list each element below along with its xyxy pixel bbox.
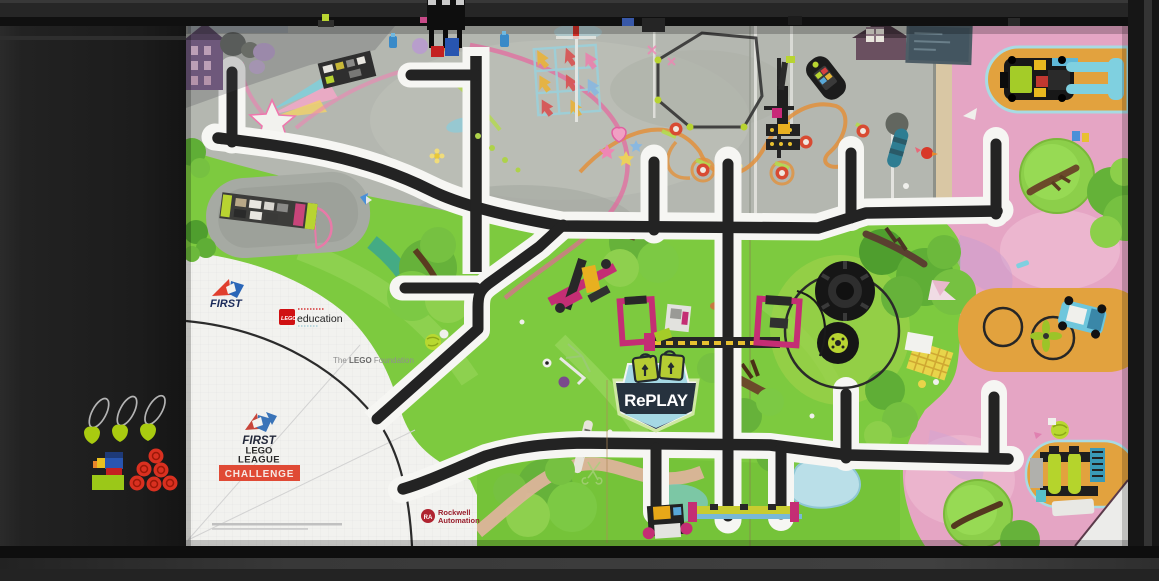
svg-text:CHALLENGE: CHALLENGE <box>225 469 294 480</box>
svg-text:RA: RA <box>424 515 433 521</box>
svg-text:LEGO: LEGO <box>281 316 297 322</box>
svg-text:LEAGUE: LEAGUE <box>238 455 280 466</box>
svg-text:Automation: Automation <box>438 516 480 525</box>
svg-text:The LEGO Foundation: The LEGO Foundation <box>333 356 414 365</box>
svg-text:FIRST: FIRST <box>210 298 243 310</box>
svg-text:education: education <box>297 313 343 325</box>
svg-text:RePLAY: RePLAY <box>624 391 689 410</box>
